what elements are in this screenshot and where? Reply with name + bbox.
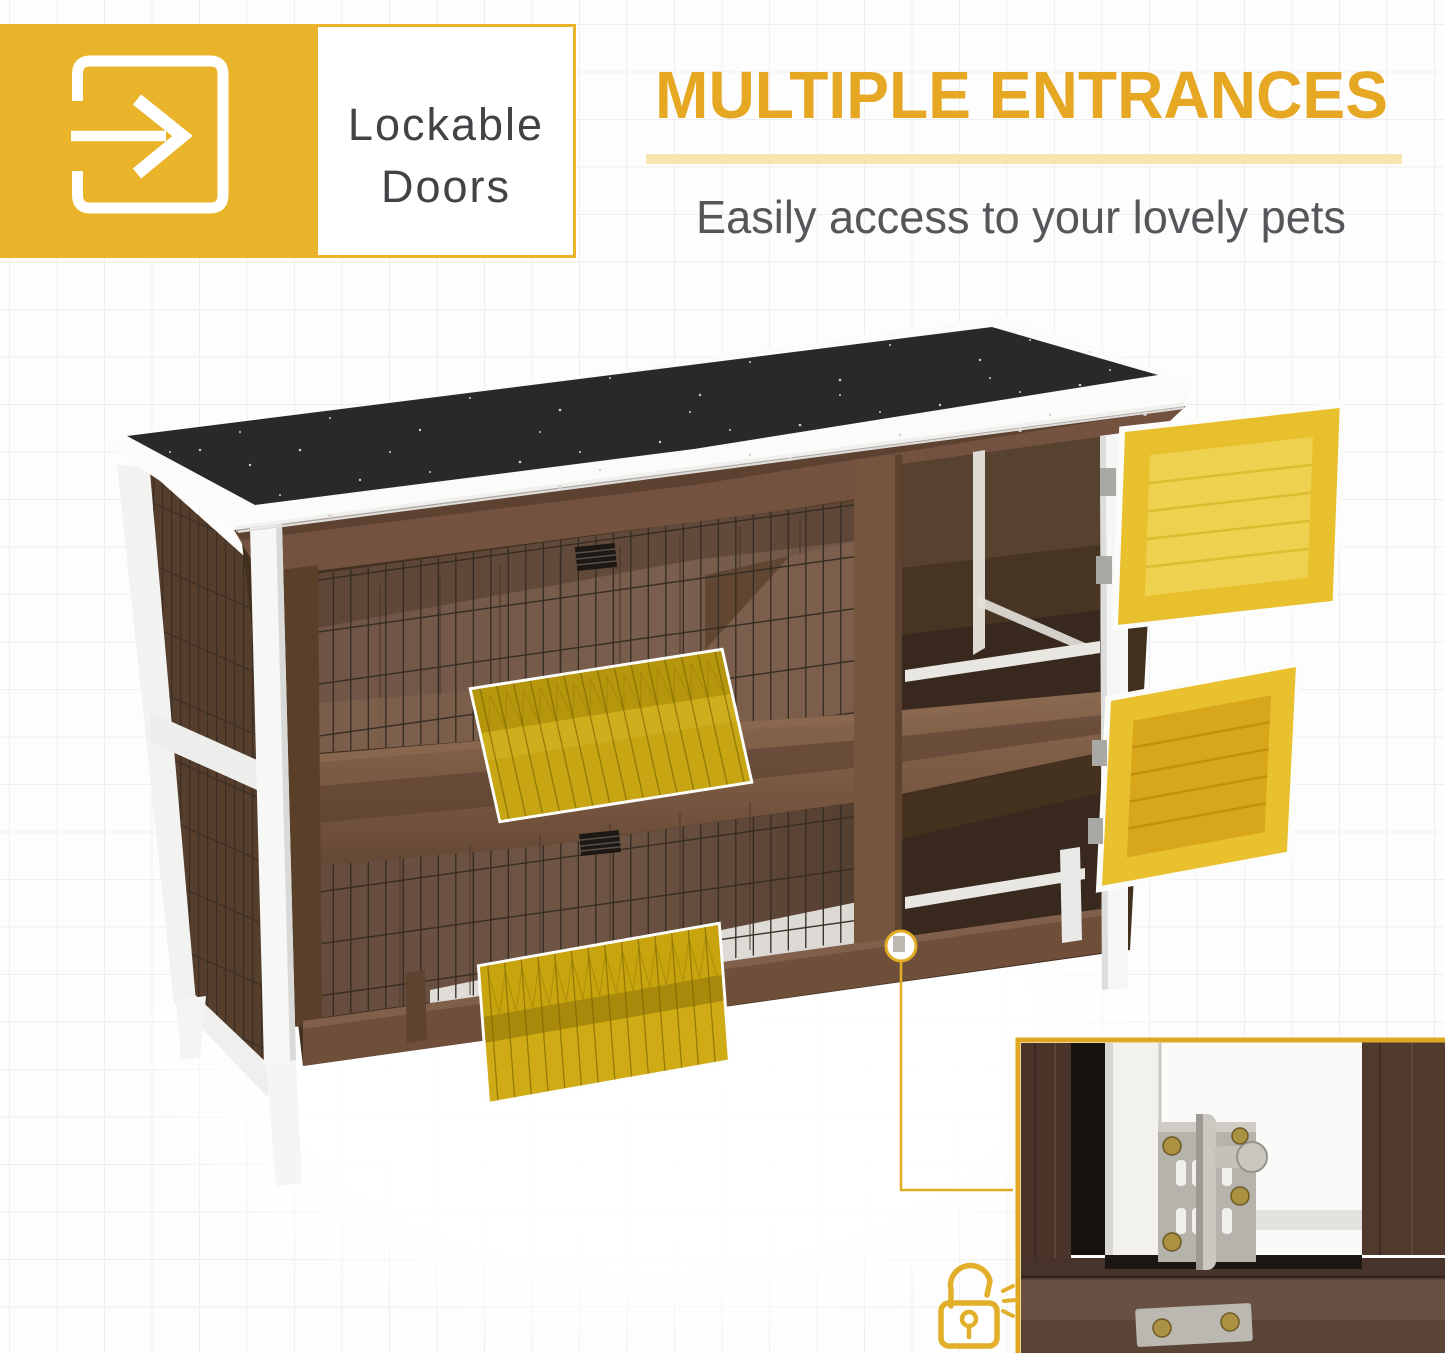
svg-text:Lockable: Lockable	[348, 99, 544, 150]
svg-text:MULTIPLE ENTRANCES: MULTIPLE ENTRANCES	[655, 58, 1388, 133]
svg-text:Easily access to your lovely p: Easily access to your lovely pets	[696, 191, 1346, 243]
svg-text:Doors: Doors	[381, 161, 511, 212]
